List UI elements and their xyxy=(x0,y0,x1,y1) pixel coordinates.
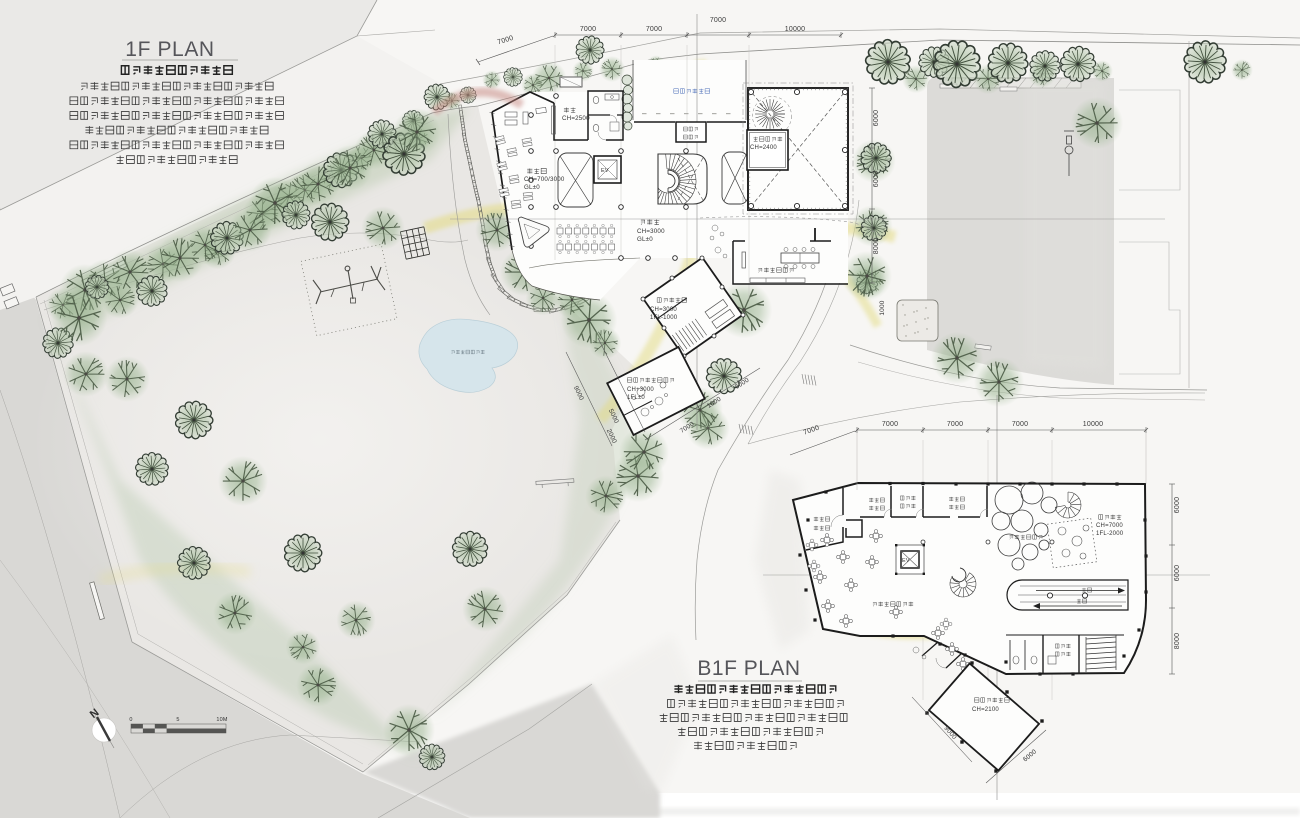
svg-text:1000: 1000 xyxy=(879,300,886,315)
svg-text:7000: 7000 xyxy=(646,26,662,33)
svg-text:CH=2400: CH=2400 xyxy=(750,145,777,151)
svg-text:CH=2100: CH=2100 xyxy=(972,707,999,713)
svg-text:10000: 10000 xyxy=(785,26,805,33)
svg-text:10M: 10M xyxy=(216,717,228,723)
svg-text:1FL-2000: 1FL-2000 xyxy=(1096,531,1124,537)
svg-text:5: 5 xyxy=(176,717,179,723)
svg-text:GL±0: GL±0 xyxy=(524,184,540,191)
svg-text:EV: EV xyxy=(902,558,910,564)
svg-text:7000: 7000 xyxy=(580,26,596,33)
svg-text:7000: 7000 xyxy=(882,421,898,428)
svg-text:CH=7000: CH=7000 xyxy=(1096,523,1123,529)
svg-text:7000: 7000 xyxy=(710,17,726,24)
svg-text:CH=700/3000: CH=700/3000 xyxy=(524,176,565,183)
svg-text:6000: 6000 xyxy=(873,171,880,187)
svg-text:6000: 6000 xyxy=(1174,565,1181,581)
svg-text:CH+3000: CH+3000 xyxy=(627,387,654,393)
svg-text:EV: EV xyxy=(601,168,609,174)
svg-text:8000: 8000 xyxy=(1174,633,1181,649)
svg-text:10000: 10000 xyxy=(1083,421,1103,428)
svg-text:8000: 8000 xyxy=(873,238,880,254)
svg-text:CH=2500: CH=2500 xyxy=(562,115,590,122)
svg-text:7000: 7000 xyxy=(947,421,963,428)
svg-text:GL±0: GL±0 xyxy=(637,236,653,243)
svg-text:1FL±0: 1FL±0 xyxy=(627,395,645,401)
svg-text:CH=3000: CH=3000 xyxy=(650,307,677,313)
svg-text:6000: 6000 xyxy=(873,110,880,126)
svg-text:B1F PLAN: B1F PLAN xyxy=(697,657,800,680)
svg-text:CH=3000: CH=3000 xyxy=(637,228,665,235)
svg-text:1FL-1000: 1FL-1000 xyxy=(650,315,678,321)
svg-text:1F PLAN: 1F PLAN xyxy=(125,38,214,61)
svg-text:6000: 6000 xyxy=(1174,497,1181,513)
svg-text:7000: 7000 xyxy=(1012,421,1028,428)
svg-text:0: 0 xyxy=(129,717,132,723)
